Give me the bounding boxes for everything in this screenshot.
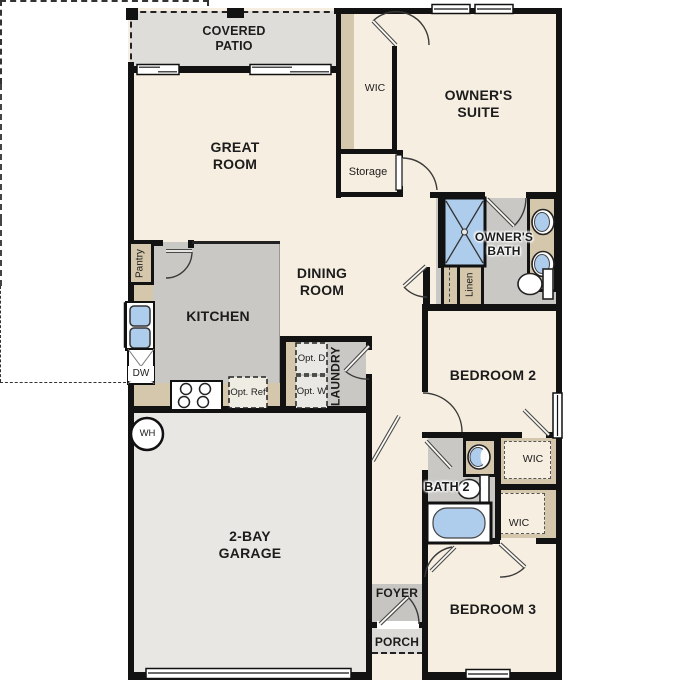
room-label-foyer: FOYER	[373, 585, 421, 601]
wall	[336, 192, 401, 197]
fixture-label-opt-ref: Opt. Ref	[229, 378, 267, 408]
wall	[422, 311, 428, 392]
wall	[366, 342, 372, 350]
owners-wic-shelf	[341, 13, 354, 151]
wall	[368, 622, 378, 628]
counter-dash-h	[0, 382, 126, 383]
room-label-bedroom-3: BEDROOM 3	[438, 598, 548, 620]
room-label-bedroom3-wic: WIC	[499, 515, 539, 532]
fixture-label-water-heater: WH	[133, 427, 162, 441]
wall	[280, 336, 372, 342]
wall	[397, 186, 403, 197]
room-label-garage: 2-BAY GARAGE	[215, 523, 285, 567]
wall	[366, 412, 372, 680]
fixture-label-opt-dryer: Opt. D	[296, 344, 327, 374]
wall	[495, 484, 562, 490]
owners-wic-dash	[0, 84, 2, 220]
room-label-laundry: LAUNDRY	[327, 343, 344, 410]
wall	[128, 66, 341, 73]
room-label-bedroom2-wic: WIC	[514, 451, 552, 468]
room-label-owners-wic: WIC	[356, 79, 394, 97]
room-label-porch: PORCH	[373, 634, 421, 650]
wall	[546, 432, 562, 438]
patio-post	[126, 8, 138, 20]
floor-plan: COVERED PATIO GREAT ROOM OWNER'S SUITE W…	[0, 0, 687, 687]
fixture-label-dishwasher: DW	[128, 366, 154, 381]
room-label-dining-room: DINING ROOM	[287, 259, 357, 304]
linen-divider	[457, 265, 460, 304]
wall	[128, 672, 372, 680]
linen-dash	[449, 267, 450, 302]
room-label-storage: Storage	[339, 164, 397, 181]
wall	[490, 538, 500, 544]
room-label-bedroom-2: BEDROOM 2	[438, 364, 548, 386]
room-label-kitchen: KITCHEN	[168, 306, 268, 327]
room-label-owners-bath: OWNER'S BATH	[471, 226, 537, 262]
wall	[422, 544, 428, 680]
room-label-bath-2: BATH 2	[424, 469, 470, 505]
room-label-pantry: Pantry	[130, 245, 151, 283]
wall-thin	[192, 241, 280, 244]
wall	[422, 672, 562, 680]
wall	[280, 336, 286, 412]
wall	[556, 8, 562, 680]
fixture-label-opt-washer: Opt. W	[296, 377, 327, 407]
wall	[334, 8, 562, 14]
wall	[438, 192, 444, 268]
wall	[392, 46, 397, 152]
wall	[397, 150, 403, 158]
wall	[418, 622, 426, 628]
room-label-linen: Linen	[461, 266, 480, 304]
laundry-dash	[0, 220, 2, 286]
wall	[536, 538, 562, 544]
room-label-covered-patio: COVERED PATIO	[189, 17, 279, 61]
counter-dash-v	[0, 286, 1, 382]
room-label-owners-suite: OWNER'S SUITE	[436, 79, 521, 129]
wall	[336, 149, 397, 154]
room-label-great-room: GREAT ROOM	[200, 133, 270, 179]
